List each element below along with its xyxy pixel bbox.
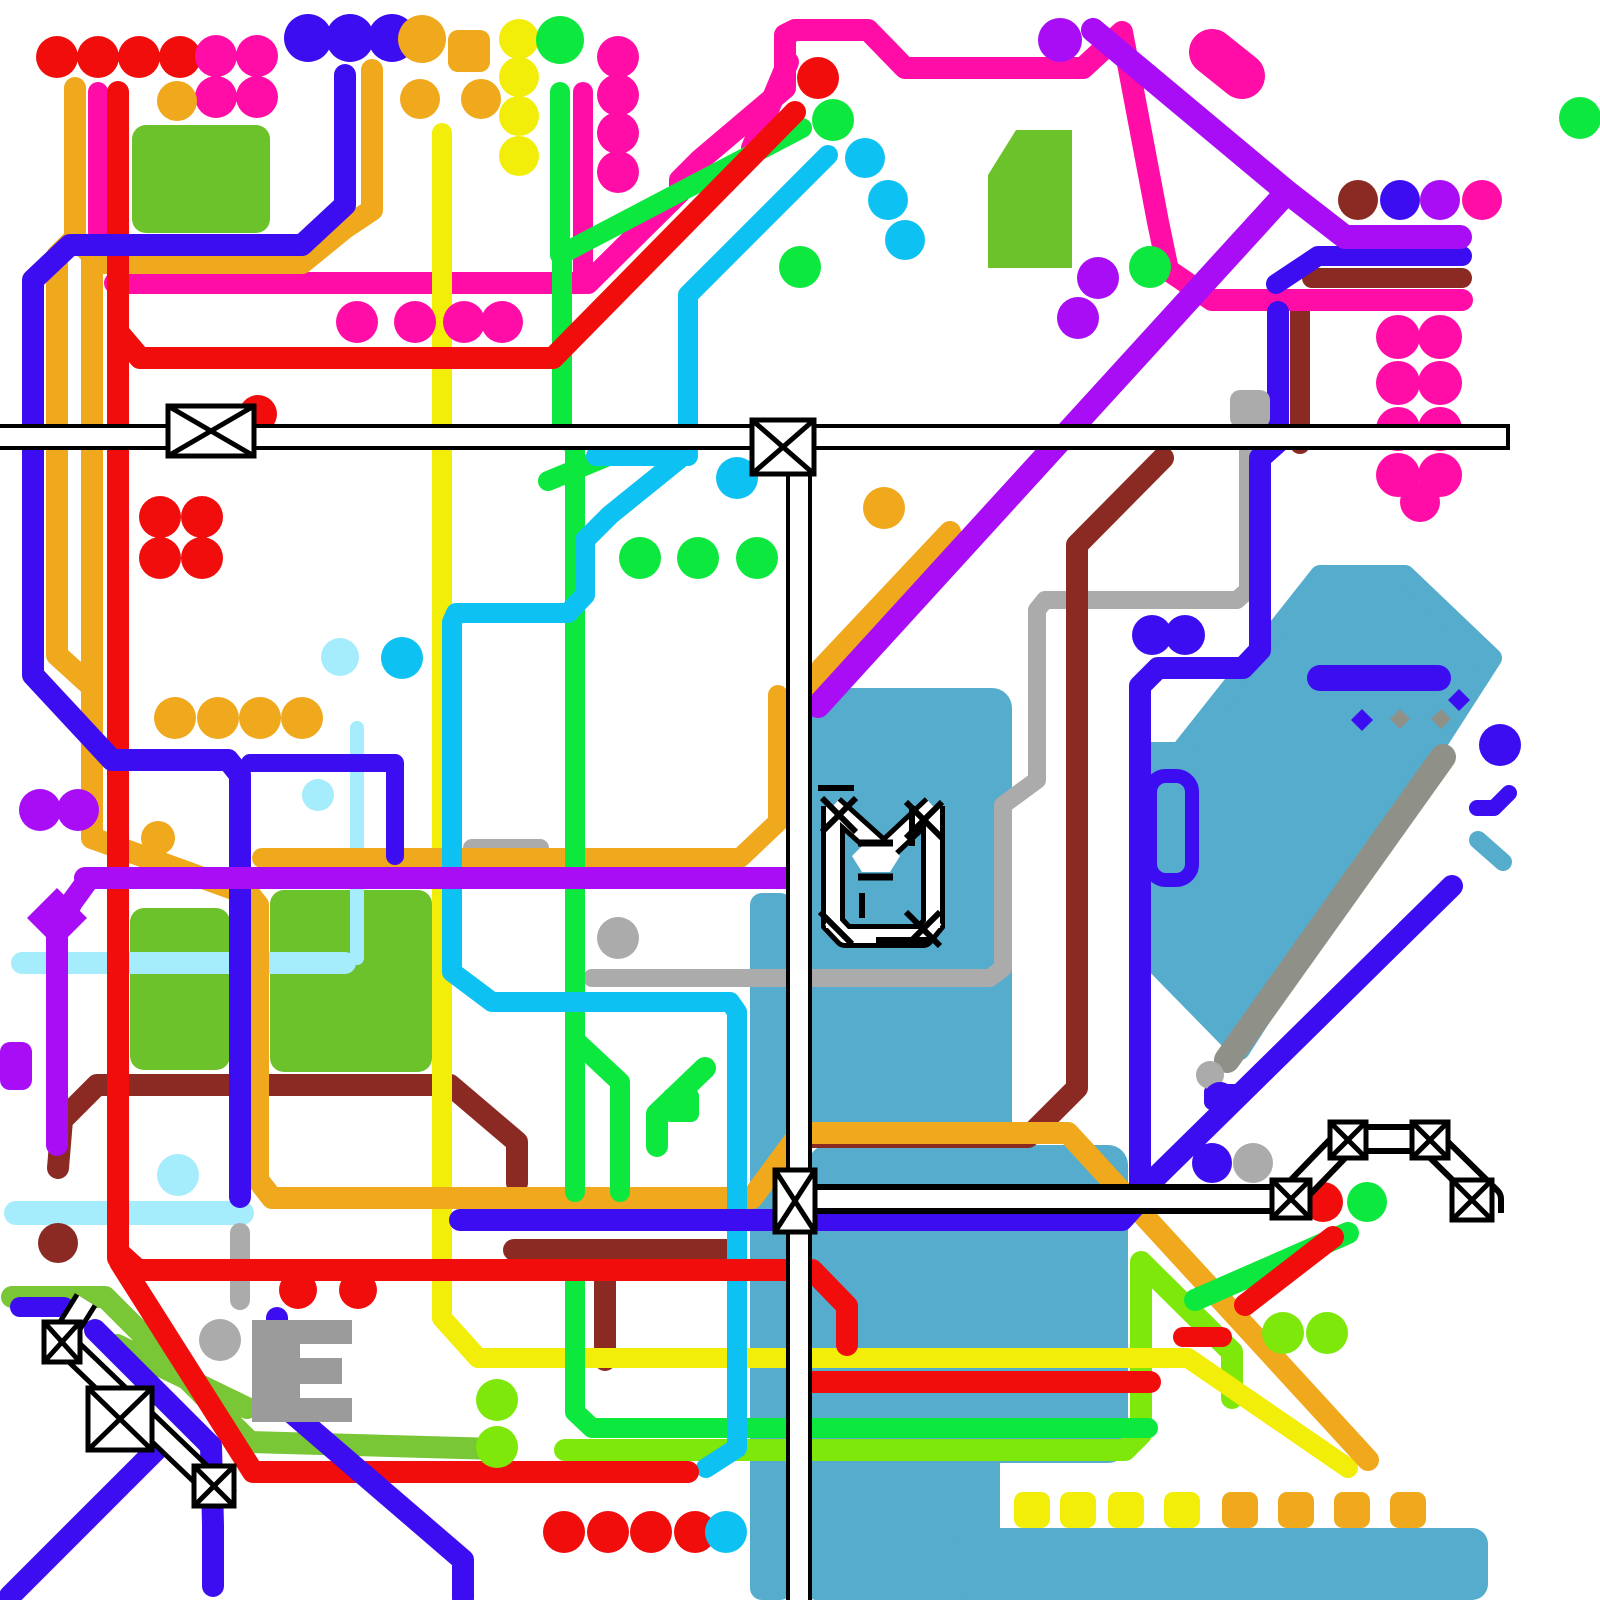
- station-dot-purple: [57, 789, 99, 831]
- station-dot-magenta: [236, 76, 278, 118]
- station-dot-purple: [1420, 180, 1460, 220]
- station-dot-purple: [19, 789, 61, 831]
- station-dot-green: [812, 99, 854, 141]
- station-dot-palecyan: [321, 638, 359, 676]
- station-dot-brown: [38, 1223, 78, 1263]
- station-dot-orange: [400, 79, 440, 119]
- station-dot-gray: [1233, 1143, 1273, 1183]
- station-dot-green: [1559, 97, 1600, 139]
- station-dot-blue: [1192, 1143, 1232, 1183]
- station-dot-magenta: [597, 112, 639, 154]
- station-dot-brown: [1338, 180, 1378, 220]
- station-dot-magenta: [481, 301, 523, 343]
- station-dot-chartreuse: [1262, 1312, 1304, 1354]
- station-dot-orange: [398, 15, 446, 63]
- station-dot-chartreuse: [1306, 1312, 1348, 1354]
- station-dot-magenta: [1418, 361, 1462, 405]
- station-dot-gray: [199, 1319, 241, 1361]
- station-dot-blue: [326, 14, 374, 62]
- station-dot-yellow: [499, 96, 539, 136]
- station-dot-cyan: [845, 138, 885, 178]
- station-dot-magenta: [597, 36, 639, 78]
- station-dot-green: [536, 16, 584, 64]
- station-dot-orange: [141, 821, 175, 855]
- station-dot-green: [1129, 246, 1171, 288]
- station-dot-cyan: [705, 1511, 747, 1553]
- station-dot-orange: [197, 697, 239, 739]
- station-dot-red: [181, 537, 223, 579]
- e-building-glyph: [252, 1320, 352, 1422]
- station-dot-blue: [1479, 724, 1521, 766]
- station-dot-cyan: [885, 220, 925, 260]
- station-dot-cyan: [381, 637, 423, 679]
- station-dot-magenta: [1462, 180, 1502, 220]
- station-dot-chartreuse: [476, 1426, 518, 1468]
- station-dot-red: [36, 36, 78, 78]
- station-dot-red: [77, 36, 119, 78]
- station-dot-magenta: [195, 35, 237, 77]
- station-dot-red: [279, 1271, 317, 1309]
- station-dot-yellow: [499, 136, 539, 176]
- station-dot-red: [139, 496, 181, 538]
- station-dot-purple: [1077, 257, 1119, 299]
- station-dot-magenta: [597, 74, 639, 116]
- route-magenta-ne-blob: [1212, 52, 1242, 76]
- station-dot-magenta: [1418, 315, 1462, 359]
- station-dot-blue: [1380, 180, 1420, 220]
- station-dot-magenta: [1376, 315, 1420, 359]
- station-dot-palecyan: [302, 779, 334, 811]
- station-dot-magenta: [236, 35, 278, 77]
- station-dot-gray: [597, 917, 639, 959]
- station-dot-orange: [239, 697, 281, 739]
- station-dot-palecyan: [157, 1154, 199, 1196]
- station-dot-red: [118, 36, 160, 78]
- station-dot-red: [159, 36, 201, 78]
- transit-map-canvas[interactable]: [0, 0, 1600, 1600]
- station-dot-magenta: [443, 301, 485, 343]
- station-dot-purple: [1038, 18, 1082, 62]
- station-dot-magenta: [597, 151, 639, 193]
- station-dot-red: [181, 496, 223, 538]
- station-dot-purple: [1057, 297, 1099, 339]
- station-dot-red: [139, 537, 181, 579]
- station-dot-magenta: [1376, 361, 1420, 405]
- station-dot-red: [797, 57, 839, 99]
- station-dot-yellow: [499, 57, 539, 97]
- station-dot-orange: [461, 79, 501, 119]
- station-dot-blue: [284, 14, 332, 62]
- station-dot-magenta: [1400, 482, 1440, 522]
- station-dot-green: [677, 537, 719, 579]
- station-dot-cyan: [868, 180, 908, 220]
- station-dot-blue: [1165, 615, 1205, 655]
- station-dot-red: [339, 1271, 377, 1309]
- station-dot-magenta: [336, 301, 378, 343]
- station-dot-magenta: [394, 301, 436, 343]
- station-dot-orange: [863, 487, 905, 529]
- station-dot-green: [779, 246, 821, 288]
- station-dot-red: [587, 1511, 629, 1553]
- station-dot-orange: [157, 81, 197, 121]
- station-dot-red: [543, 1511, 585, 1553]
- station-dot-magenta: [195, 76, 237, 118]
- station-dot-green: [1347, 1182, 1387, 1222]
- station-dot-chartreuse: [476, 1379, 518, 1421]
- station-dot-yellow: [499, 19, 539, 59]
- station-dot-red: [630, 1511, 672, 1553]
- station-dot-green: [736, 537, 778, 579]
- station-dot-orange: [281, 697, 323, 739]
- transit-map[interactable]: [0, 0, 1600, 1600]
- station-dot-green: [619, 537, 661, 579]
- station-dot-blue: [1204, 1082, 1236, 1114]
- station-dot-orange: [154, 697, 196, 739]
